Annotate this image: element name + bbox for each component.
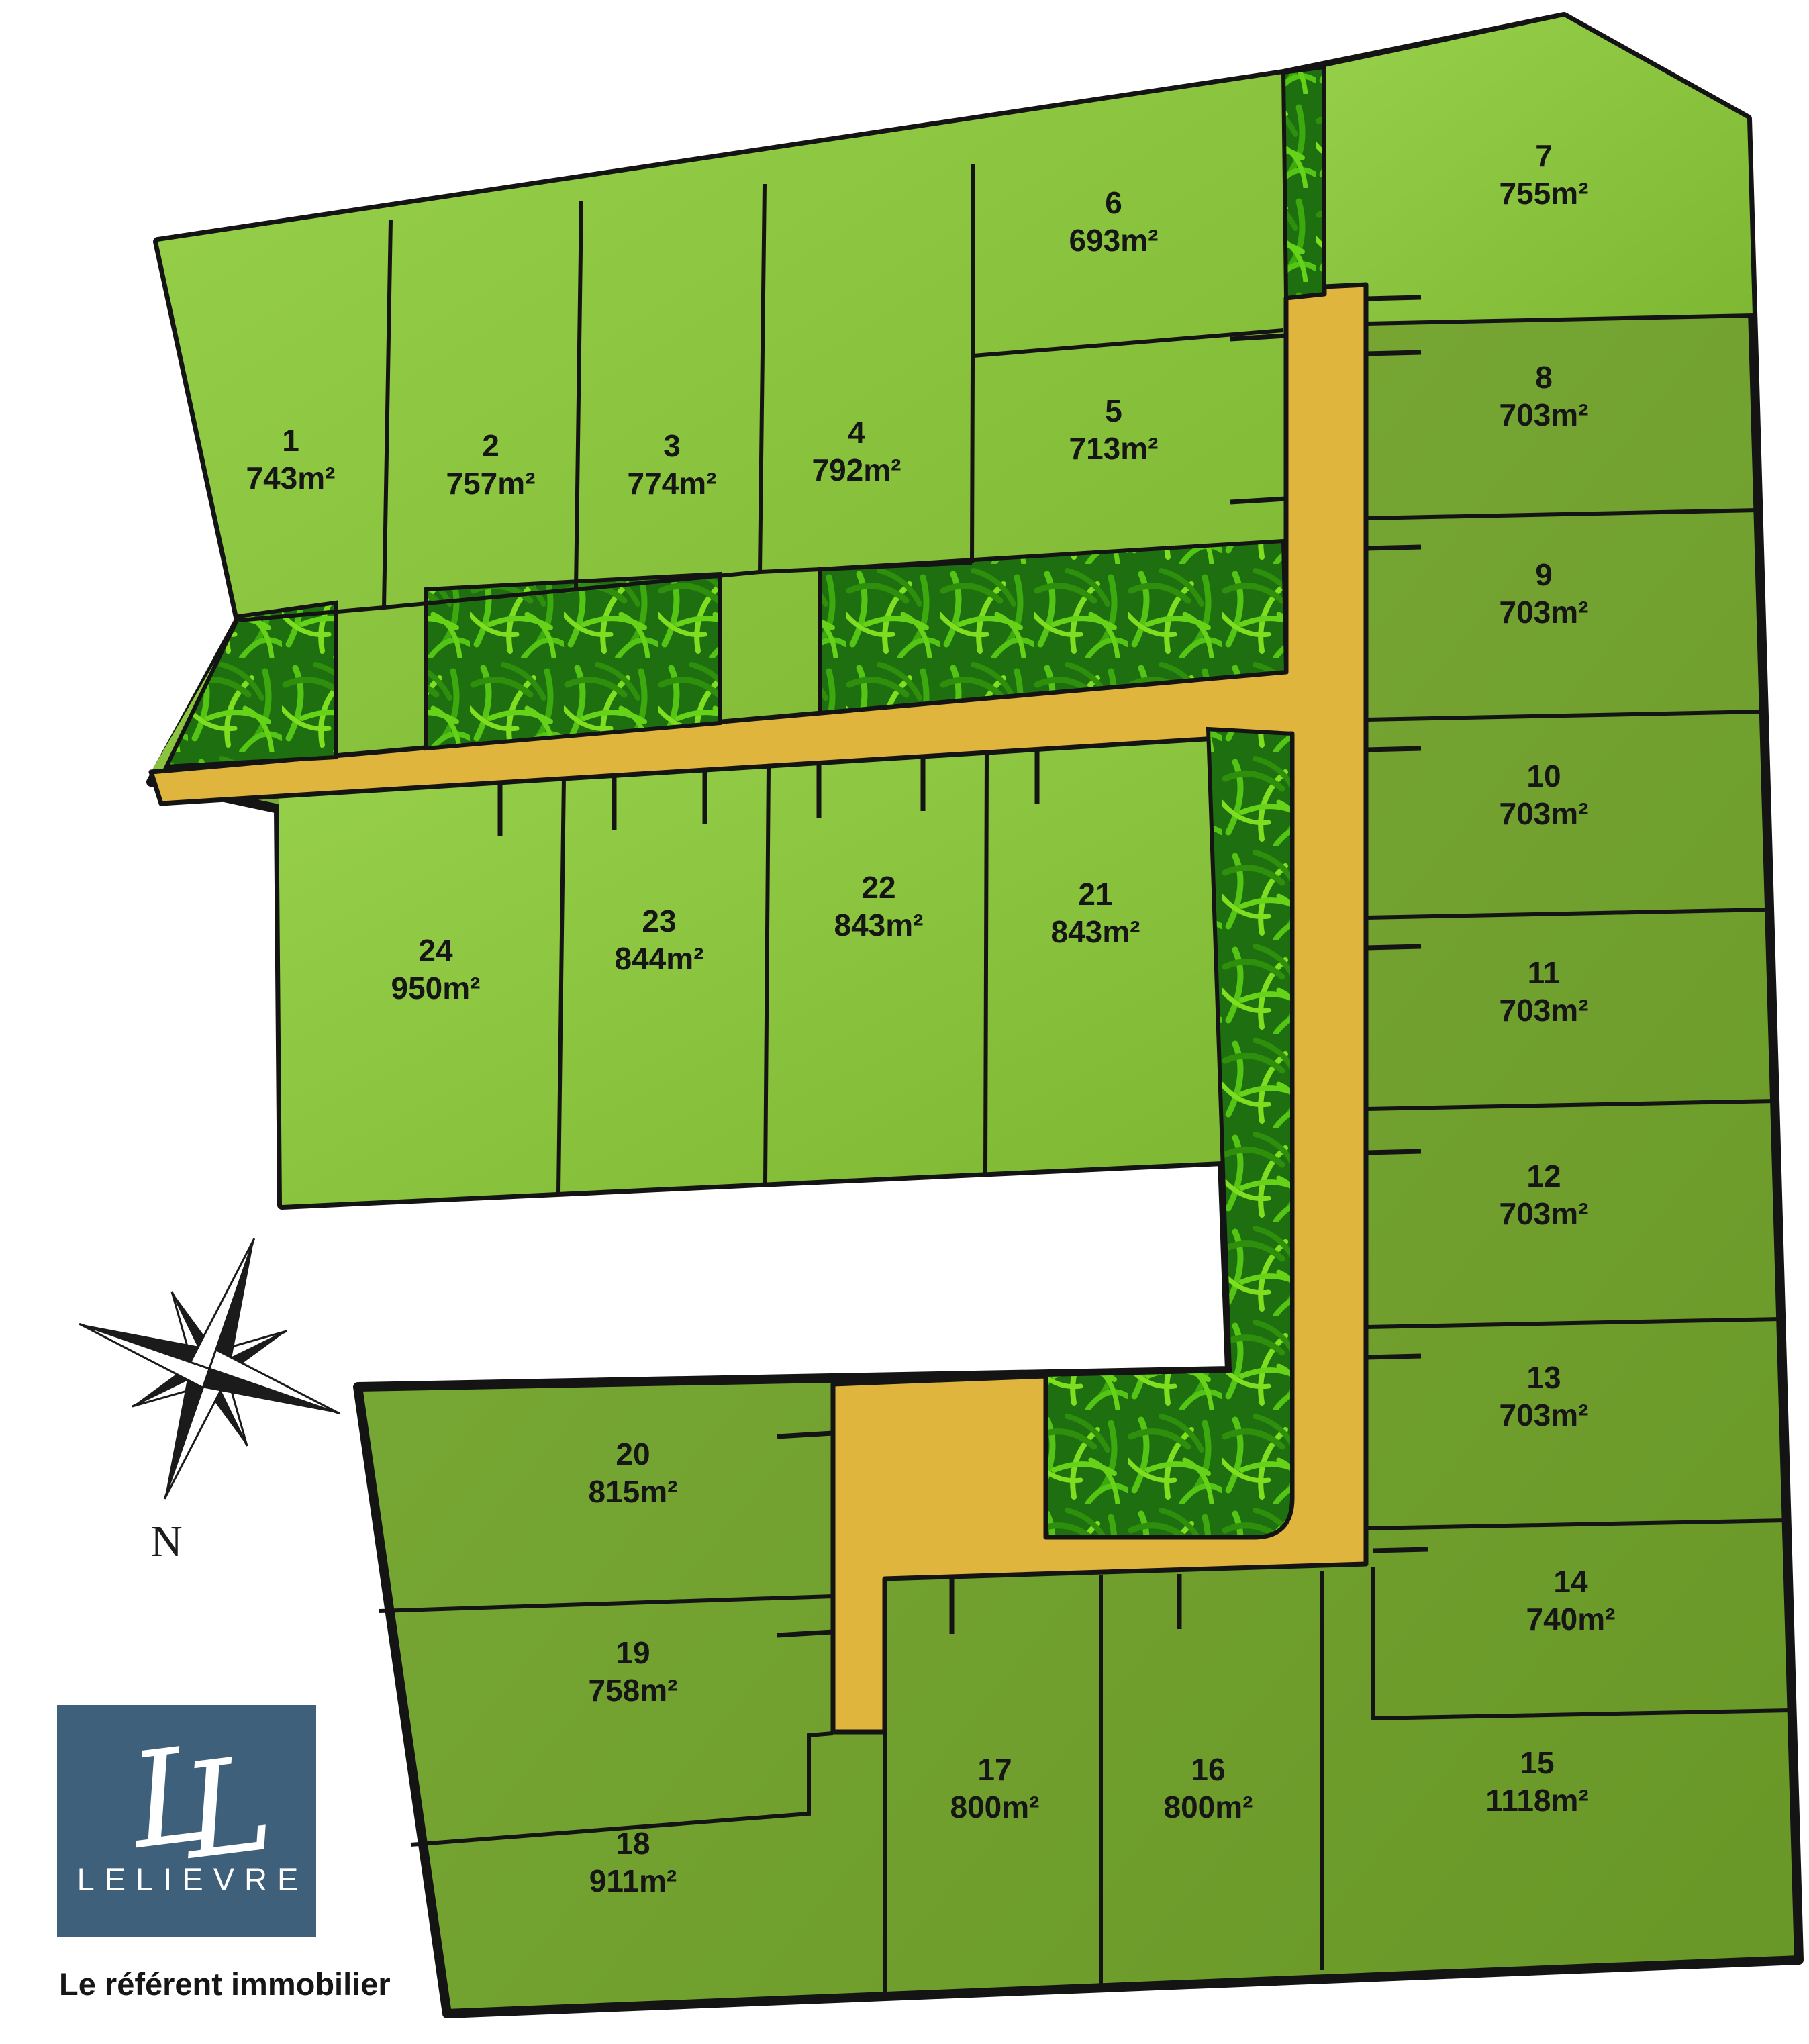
lot-area: 703m² xyxy=(1500,1398,1589,1432)
green-buffer-strip-top xyxy=(1283,67,1324,298)
lot-number: 12 xyxy=(1526,1159,1561,1194)
lot-number: 10 xyxy=(1526,759,1561,793)
lot-number: 19 xyxy=(616,1635,650,1670)
lot-area: 758m² xyxy=(589,1673,678,1708)
lot-area: 693m² xyxy=(1069,223,1159,258)
lot-area: 792m² xyxy=(812,452,901,487)
lot-number: 6 xyxy=(1105,185,1122,220)
lot-number: 16 xyxy=(1191,1752,1225,1787)
lot-number: 21 xyxy=(1078,877,1112,912)
lot-number: 22 xyxy=(861,870,895,905)
lot-area: 703m² xyxy=(1500,993,1589,1028)
lot-number: 11 xyxy=(1528,955,1561,990)
lot-area: 911m² xyxy=(589,1863,677,1898)
lot-number: 5 xyxy=(1105,393,1122,428)
lot-number: 24 xyxy=(418,933,453,968)
lot-number: 17 xyxy=(977,1752,1012,1787)
lot-area: 703m² xyxy=(1500,397,1589,432)
lot-area: 800m² xyxy=(950,1790,1040,1824)
lot-number: 1 xyxy=(282,423,299,458)
lot-area: 774m² xyxy=(628,466,717,501)
lot-number: 8 xyxy=(1535,360,1553,395)
lot-number: 2 xyxy=(482,428,499,463)
compass-star xyxy=(34,1194,384,1543)
lot-area: 703m² xyxy=(1500,595,1589,630)
lot-number: 23 xyxy=(642,904,676,938)
site-plan: 1 743m² 2 757m² 3 774m² 4 792m² 5 713m² … xyxy=(0,0,1809,2044)
lot-number: 14 xyxy=(1553,1564,1588,1599)
lot-number: 13 xyxy=(1526,1360,1561,1395)
lot-number: 7 xyxy=(1535,138,1553,173)
lot-number: 15 xyxy=(1520,1745,1554,1780)
site-plan-page: 1 743m² 2 757m² 3 774m² 4 792m² 5 713m² … xyxy=(0,0,1809,2044)
lot-area: 757m² xyxy=(446,466,536,501)
lot-area: 843m² xyxy=(1051,914,1140,949)
lot-area: 740m² xyxy=(1526,1602,1616,1637)
hedge-1 xyxy=(166,603,336,767)
compass-rose: N xyxy=(34,1194,384,1566)
lot-area: 713m² xyxy=(1069,431,1159,466)
compass-north-label: N xyxy=(150,1517,183,1566)
lot-area: 843m² xyxy=(834,908,924,942)
lot-number: 3 xyxy=(663,428,681,463)
lot-number: 18 xyxy=(616,1826,650,1861)
lot-area: 703m² xyxy=(1500,1196,1589,1231)
lot-number: 4 xyxy=(848,415,865,450)
lot-number: 20 xyxy=(616,1437,650,1471)
lot-area: 800m² xyxy=(1164,1790,1253,1824)
lot-area: 844m² xyxy=(615,941,704,976)
lot-area: 1118m² xyxy=(1485,1783,1588,1818)
logo-tagline: Le référent immobilier xyxy=(59,1966,391,2002)
lelievre-logo: L L LELIEVRE Le référent immobilier xyxy=(57,1705,391,2002)
lot-area: 755m² xyxy=(1500,176,1589,211)
lot-area: 815m² xyxy=(589,1474,678,1509)
lot-area: 743m² xyxy=(246,460,336,495)
lot-area: 703m² xyxy=(1500,796,1589,831)
lot-area: 950m² xyxy=(391,971,481,1006)
lot-number: 9 xyxy=(1535,557,1553,592)
logo-name: LELIEVRE xyxy=(77,1861,309,1897)
